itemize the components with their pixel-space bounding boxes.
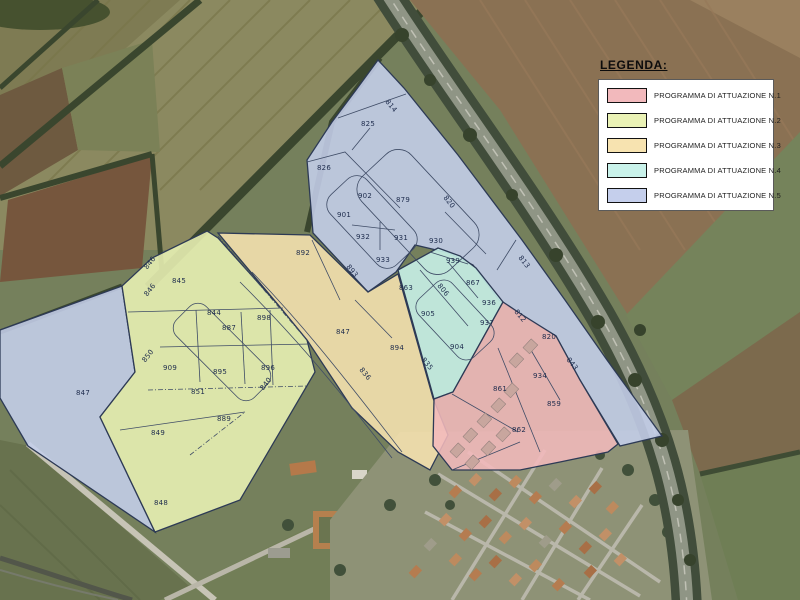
legend-label-3: PROGRAMMA DI ATTUAZIONE N.3: [654, 141, 781, 150]
legend-label-5: PROGRAMMA DI ATTUAZIONE N.5: [654, 191, 781, 200]
legend-item-2: PROGRAMMA DI ATTUAZIONE N.2: [607, 112, 765, 128]
legend-swatch-2: [607, 113, 647, 128]
legend-swatch-5: [607, 188, 647, 203]
legend-box: PROGRAMMA DI ATTUAZIONE N.1PROGRAMMA DI …: [598, 79, 774, 211]
legend-item-4: PROGRAMMA DI ATTUAZIONE N.4: [607, 162, 765, 178]
legend-label-2: PROGRAMMA DI ATTUAZIONE N.2: [654, 116, 781, 125]
zoning-plan-map: 8128209348618598628458468448878988509098…: [0, 0, 800, 600]
legend-swatch-4: [607, 163, 647, 178]
legend-item-1: PROGRAMMA DI ATTUAZIONE N.1: [607, 87, 765, 103]
legend: LEGENDA: PROGRAMMA DI ATTUAZIONE N.1PROG…: [598, 56, 778, 211]
legend-label-4: PROGRAMMA DI ATTUAZIONE N.4: [654, 166, 781, 175]
legend-item-5: PROGRAMMA DI ATTUAZIONE N.5: [607, 187, 765, 203]
legend-item-3: PROGRAMMA DI ATTUAZIONE N.3: [607, 137, 765, 153]
legend-label-1: PROGRAMMA DI ATTUAZIONE N.1: [654, 91, 781, 100]
legend-swatch-1: [607, 88, 647, 103]
legend-title: LEGENDA:: [600, 58, 667, 72]
legend-swatch-3: [607, 138, 647, 153]
